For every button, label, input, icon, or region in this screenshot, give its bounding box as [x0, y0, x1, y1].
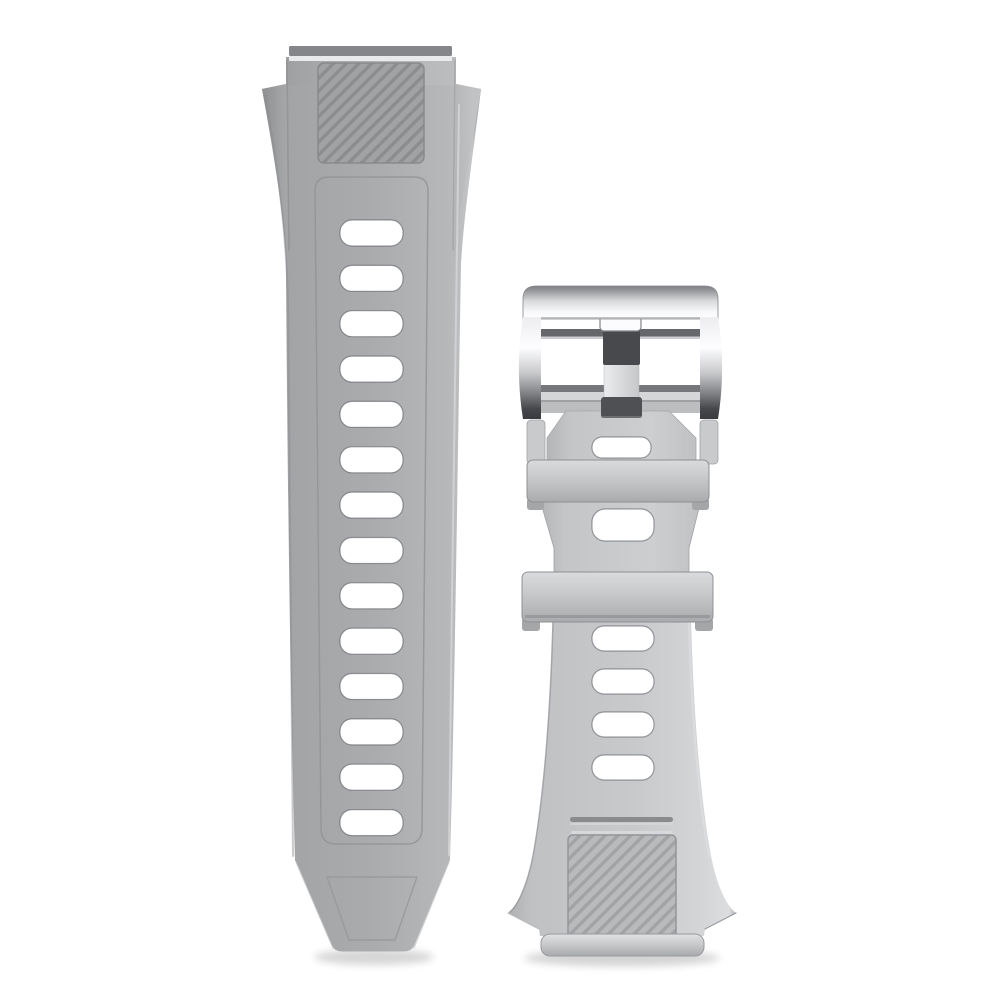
- left-strap-hole: [340, 628, 403, 654]
- right-strap-end-cap: [541, 934, 704, 956]
- left-strap-texture-panel: [318, 63, 424, 163]
- keeper-loop-2: [522, 572, 713, 631]
- left-strap-hole: [340, 719, 403, 745]
- buckle-arm-left: [519, 317, 541, 419]
- left-strap-hole: [340, 583, 403, 609]
- buckle-top-bar: [523, 286, 718, 319]
- right-strap-hole-upper: [592, 509, 654, 541]
- right-strap: [508, 286, 736, 967]
- buckle-top-bar-seam: [523, 317, 718, 319]
- left-strap-hole: [340, 220, 403, 246]
- left-strap-hole: [340, 401, 403, 427]
- right-strap-hole: [592, 626, 654, 651]
- buckle-prong-mid: [604, 364, 639, 399]
- left-strap-hole: [340, 492, 403, 518]
- left-strap-hole: [340, 265, 403, 291]
- left-strap-hole: [340, 538, 403, 564]
- left-strap-connector-bar: [289, 46, 452, 56]
- buckle-prong-body: [603, 329, 640, 365]
- right-strap-hole-top: [592, 437, 651, 458]
- product-image: [0, 0, 1000, 1000]
- left-strap-hole: [340, 674, 403, 700]
- right-strap-groove-line: [570, 817, 673, 822]
- right-strap-hole: [592, 755, 654, 780]
- left-strap-hole: [340, 447, 403, 473]
- left-strap-connector-bar-highlight: [289, 56, 452, 61]
- right-strap-texture-panel: [568, 831, 676, 938]
- right-strap-hole: [592, 669, 654, 694]
- right-strap-hole: [592, 712, 654, 737]
- left-strap-hole: [340, 764, 403, 790]
- buckle-prong-band-highlight: [601, 416, 642, 418]
- watch-strap-scene: [0, 0, 1000, 1000]
- left-strap-hole: [340, 311, 403, 337]
- right-strap-groove-highlight: [570, 823, 673, 825]
- left-strap: [262, 46, 481, 965]
- buckle: [519, 286, 722, 419]
- left-strap-hole: [340, 810, 403, 836]
- left-strap-hole: [340, 356, 403, 382]
- buckle-prong-band: [601, 397, 642, 418]
- buckle-arm-right: [700, 317, 722, 419]
